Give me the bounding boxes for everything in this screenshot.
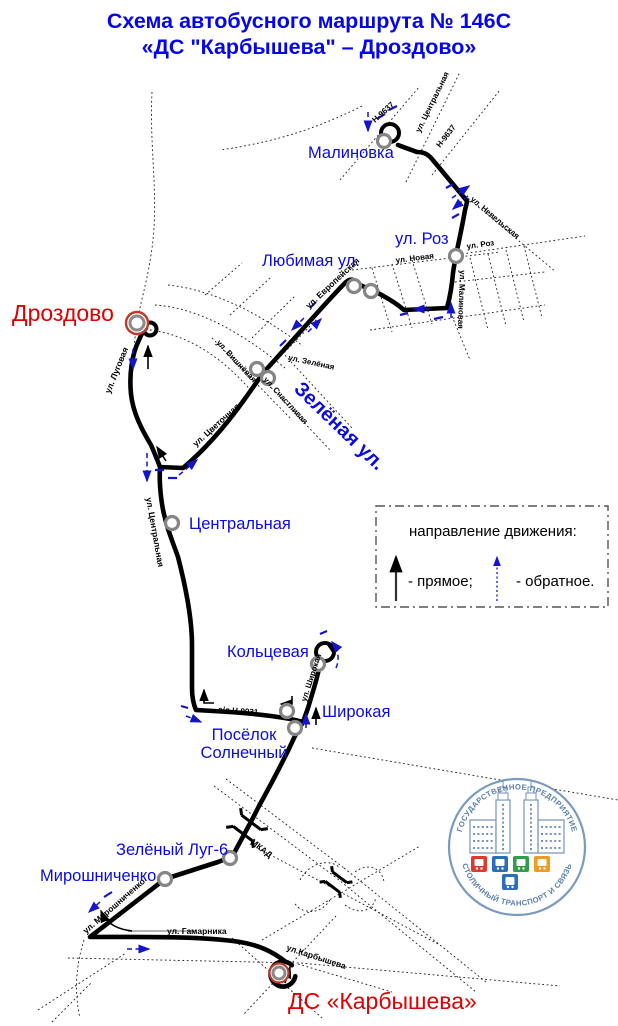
street-label: ул. Новая	[395, 251, 435, 265]
street-label: ул. Вишнёвая	[215, 338, 259, 384]
road-interchange	[250, 844, 438, 944]
stop-label-lyubimaya: Любимая ул.	[262, 252, 360, 270]
street-label: ул. Мирошниченко	[81, 876, 147, 935]
legend-reverse-label: - обратное.	[516, 573, 594, 590]
street-label: ул. Невельская	[469, 195, 522, 241]
street-label: ул. Малиновая	[456, 270, 467, 329]
road-dotted	[77, 940, 84, 1018]
street-label: а/д Н-9031	[218, 705, 259, 717]
forward-arrow	[281, 696, 292, 704]
route-map-canvas: Схема автобусного маршрута № 146С «ДС "К…	[0, 0, 618, 1026]
stop-label-posyolok-1: Посёлок	[212, 726, 277, 744]
road-dotted	[38, 953, 126, 1022]
route-map-page: Схема автобусного маршрута № 146С «ДС "К…	[0, 0, 618, 1026]
street-label: ул. Зелёная	[288, 353, 336, 372]
stop-label-koltsevaya: Кольцевая	[227, 643, 309, 661]
stop-label-zelyony-lug: Зелёный Луг-6	[116, 841, 228, 859]
forward-arrow	[204, 690, 214, 703]
stop-label-zelyonaya: Зелёная ул.	[290, 378, 389, 475]
street-label: ул. Гамарника	[167, 926, 227, 936]
stop-label-shirokaya: Широкая	[322, 703, 390, 721]
stop-label-ul-roz: ул. Роз	[395, 230, 449, 248]
street-label: Н-9637	[370, 100, 396, 125]
legend-forward-label: - прямое;	[408, 573, 473, 590]
operator-logo: ГОСУДАРСТВЕННОЕ ПРЕДПРИЯТИЕ СТОЛИЧНЫЙ ТР…	[449, 779, 585, 915]
terminal-label-karbysheva: ДС «Карбышева»	[288, 988, 477, 1014]
legend-title: направление движения:	[409, 523, 577, 540]
terminal-circle-karbysheva-inner	[273, 967, 285, 979]
road-dotted	[150, 285, 303, 392]
stop-circle-posyolok	[289, 722, 302, 735]
reverse-dash-marks	[104, 106, 459, 897]
street-label: ул. Цветочная	[191, 401, 242, 448]
street-label: ул.Карбышева	[285, 942, 347, 971]
stop-label-miroshnichenko: Мирошниченко	[40, 867, 156, 885]
map-title-line2: «ДС "Карбышева" – Дроздово»	[142, 35, 477, 59]
road-interchange-loops	[294, 863, 384, 912]
road-dotted	[312, 748, 618, 800]
street-label: ул. Луговая	[103, 346, 131, 395]
map-title-line1: Схема автобусного маршрута № 146С	[107, 9, 511, 33]
legend: направление движения: - прямое; - обратн…	[376, 506, 608, 607]
reverse-arrow	[89, 902, 100, 912]
legend-box	[376, 506, 608, 607]
terminal-label-drozdovo: Дроздово	[12, 300, 114, 326]
reverse-arrow	[186, 716, 201, 722]
terminal-circle-drozdovo-inner	[130, 316, 144, 330]
stop-circle-shirokaya	[281, 705, 294, 718]
stop-circle-ul-roz	[450, 250, 463, 263]
street-label: ул. Роз	[466, 238, 495, 251]
road-dotted	[68, 958, 560, 986]
street-label: Н-9637	[434, 123, 458, 150]
street-label: МКАД	[249, 837, 275, 860]
stop-circle-lyubimaya-2	[365, 285, 378, 298]
stop-circle-tsentralnaya	[166, 517, 179, 530]
stop-label-malinovka: Малиновка	[308, 144, 395, 162]
stop-circle-miroshnichenko	[159, 873, 172, 886]
stop-circle-lyubimaya-1	[348, 280, 361, 293]
stop-label-posyolok-2: Солнечный	[201, 744, 288, 762]
stop-label-tsentralnaya: Центральная	[189, 515, 291, 533]
